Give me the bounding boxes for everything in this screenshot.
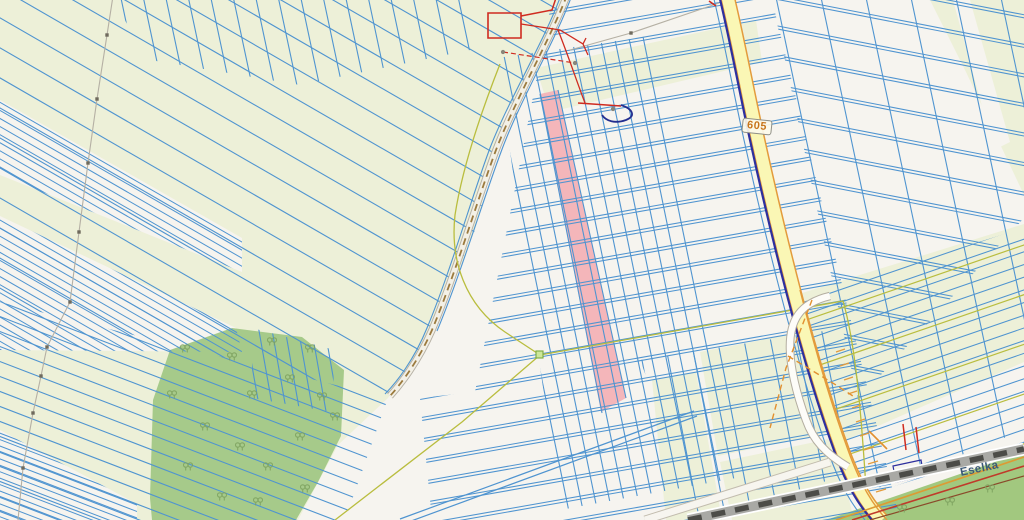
boundary-stone-icon bbox=[31, 411, 34, 414]
map-graphics bbox=[0, 0, 1024, 520]
survey-point-icon bbox=[573, 61, 577, 65]
boundary-stone-icon bbox=[45, 345, 48, 348]
cable-junction-marker bbox=[536, 351, 543, 358]
boundary-stone-icon bbox=[68, 300, 71, 303]
boundary-stone-icon bbox=[95, 97, 98, 100]
survey-point-icon bbox=[501, 50, 505, 54]
survey-point-icon bbox=[611, 107, 615, 111]
boundary-stone-icon bbox=[86, 161, 89, 164]
boundary-stone-icon bbox=[39, 374, 42, 377]
boundary-stone-icon bbox=[105, 33, 108, 36]
boundary-stone-icon bbox=[21, 466, 24, 469]
boundary-stone-icon bbox=[77, 230, 80, 233]
boundary-stone-icon bbox=[629, 31, 632, 34]
map-canvas[interactable]: 605 Eselka bbox=[0, 0, 1024, 520]
